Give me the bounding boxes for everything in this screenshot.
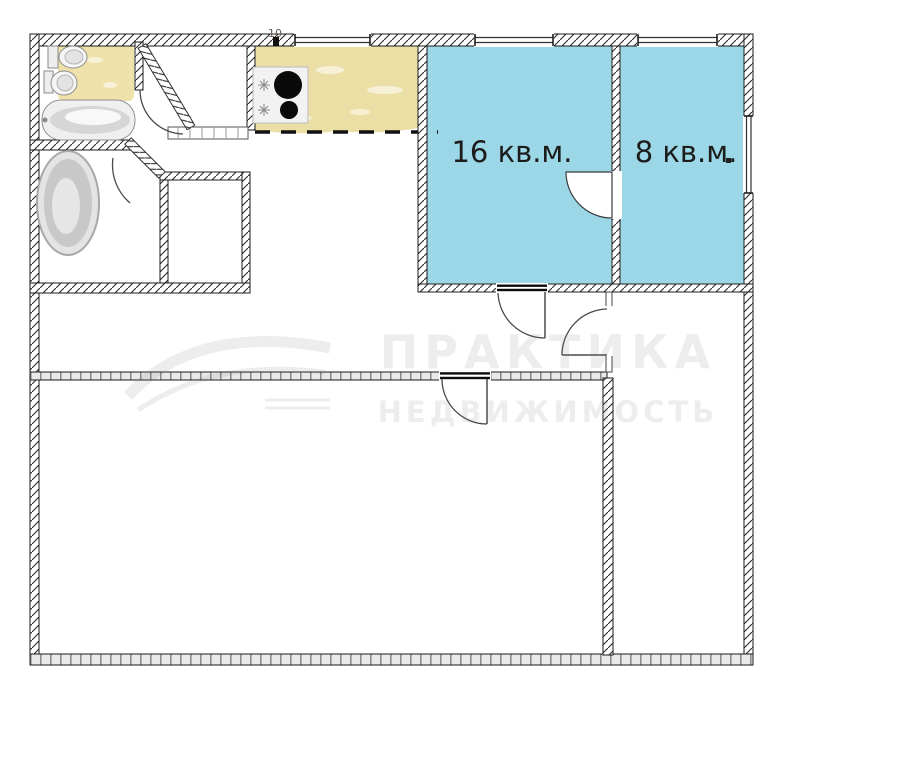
wall-between-rooms bbox=[612, 46, 620, 292]
oval-tub bbox=[37, 151, 99, 255]
riser-tick bbox=[273, 37, 279, 46]
bathtub-faucet bbox=[43, 118, 48, 123]
sink bbox=[44, 71, 77, 95]
watermark: ПРАКТИКА НЕДВИЖИМОСТЬ bbox=[128, 325, 718, 429]
stove-burner-small bbox=[280, 101, 298, 119]
watermark-logo-stripes bbox=[265, 400, 330, 408]
wall-storage-right bbox=[242, 172, 250, 292]
watermark-subtitle: НЕДВИЖИМОСТЬ bbox=[378, 395, 719, 429]
wall-bottom bbox=[30, 654, 753, 665]
room-16-area-label: 16 кв.м. bbox=[451, 135, 572, 169]
room-8-area-label: 8 кв.м. bbox=[635, 135, 738, 169]
stove bbox=[253, 67, 308, 123]
wall-left bbox=[30, 34, 39, 665]
wall-storage-top bbox=[160, 172, 250, 180]
window-room8-side bbox=[743, 116, 754, 193]
bathtub bbox=[42, 100, 135, 140]
page: 10 16 кв.м. 8 кв.м. ПРАКТИКА НЕДВИЖИМОСТ… bbox=[0, 0, 921, 768]
wall-storage-left bbox=[160, 172, 168, 292]
wall-room16-left bbox=[418, 46, 427, 292]
door-bathroom bbox=[138, 44, 195, 134]
wall-washroom-bottom bbox=[30, 283, 250, 293]
window-room8 bbox=[637, 33, 718, 47]
pass-through-counter bbox=[168, 127, 248, 139]
toilet bbox=[48, 46, 87, 68]
dimension-mark bbox=[726, 158, 731, 163]
floor-plan: 10 16 кв.м. 8 кв.м. ПРАКТИКА НЕДВИЖИМОСТ… bbox=[0, 0, 921, 768]
wall-bathroom-bottom bbox=[30, 140, 133, 150]
window-kitchen bbox=[294, 33, 371, 47]
stove-burner-large bbox=[274, 71, 302, 99]
window-room16 bbox=[474, 33, 554, 47]
wall-rooms-bottom bbox=[418, 284, 753, 292]
watermark-brand: ПРАКТИКА bbox=[380, 325, 717, 379]
